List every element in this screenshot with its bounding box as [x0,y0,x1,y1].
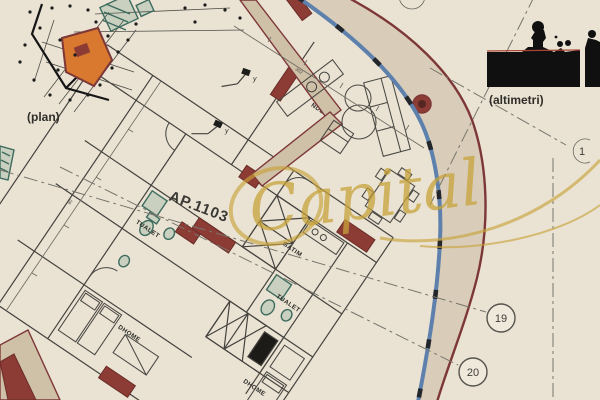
survey-marker-icon: y [224,128,229,135]
floor-plan-sheet: NDENJE GATIM TUALET TUALET DHOME DHOME [0,0,600,400]
bird-dot [555,36,558,39]
svg-text:20: 20 [467,367,479,379]
elevation-label: (altimetri) [489,93,544,107]
svg-text:19: 19 [495,313,507,325]
tree-icon [532,21,544,33]
svg-text:1: 1 [579,146,585,158]
grid-bubble-19: 19 [487,304,515,332]
grid-bubble-20: 20 [459,358,487,386]
floor-plan-drawing: NDENJE GATIM TUALET TUALET DHOME DHOME [0,0,600,400]
key-plan-label: (plan) [27,110,60,124]
tree-icon [565,40,571,46]
survey-marker-icon: y [252,76,257,83]
tree-icon [588,30,596,38]
tree-icon [557,41,563,47]
